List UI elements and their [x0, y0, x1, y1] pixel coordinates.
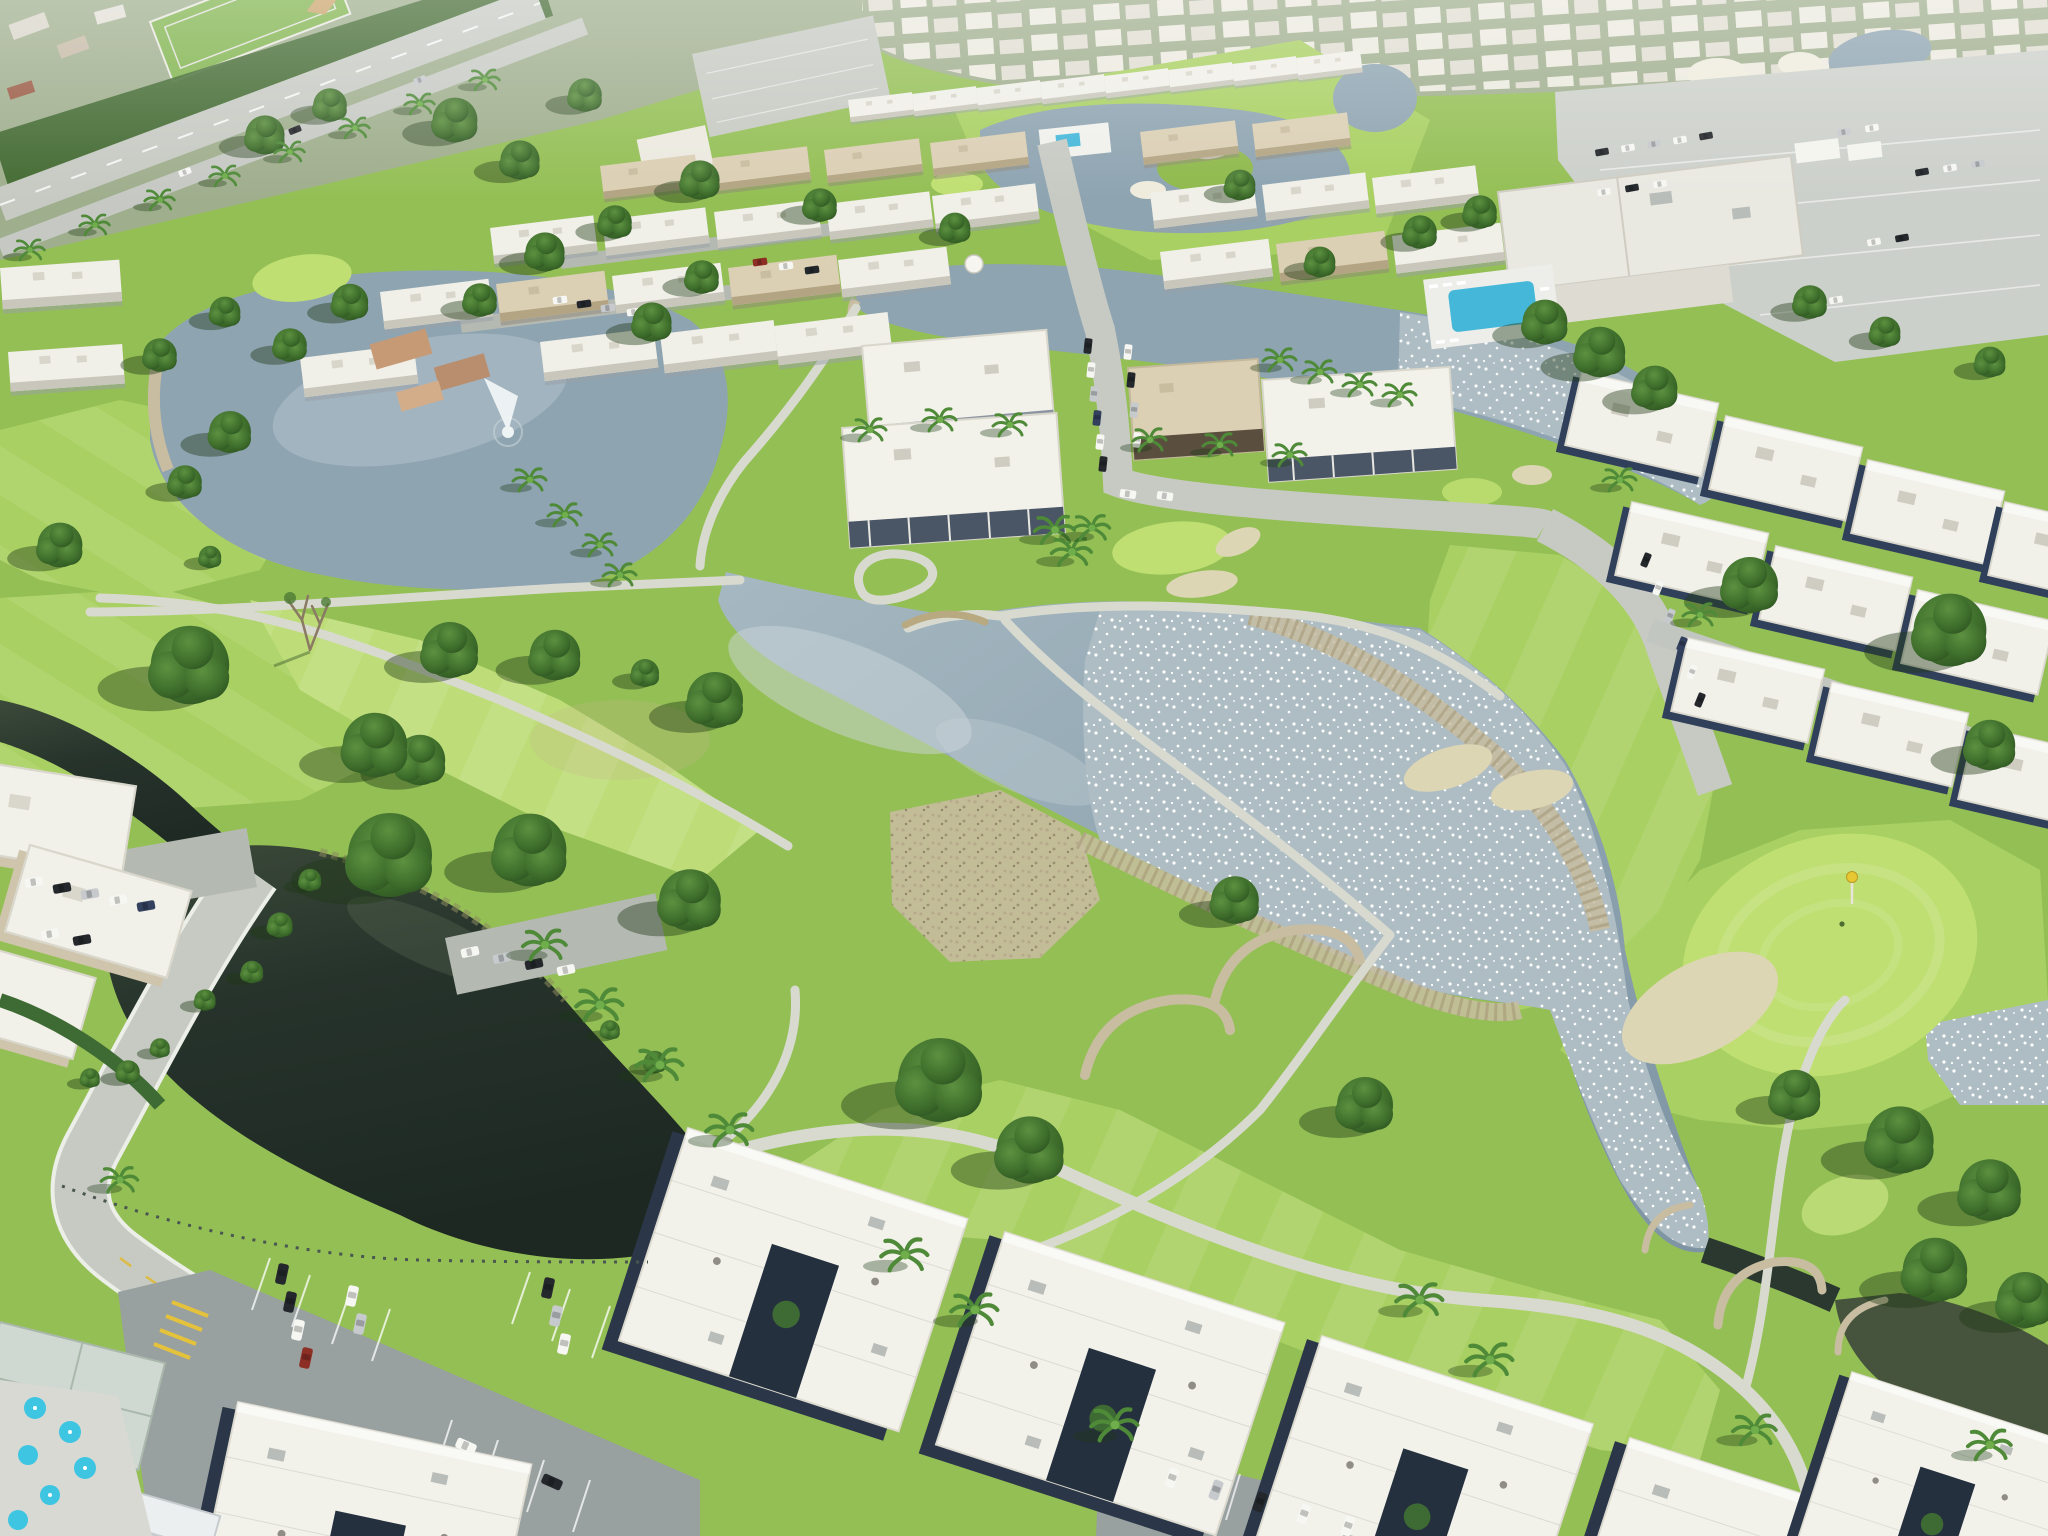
- aerial-photo: [0, 0, 2048, 1536]
- distance-haze: [0, 0, 2048, 200]
- flag: [1847, 872, 1858, 883]
- golf-hole: [1839, 921, 1844, 926]
- cupola-dome: [965, 255, 983, 273]
- sand-bunker: [1512, 465, 1552, 485]
- aerial-photo-canvas: [0, 0, 2048, 1536]
